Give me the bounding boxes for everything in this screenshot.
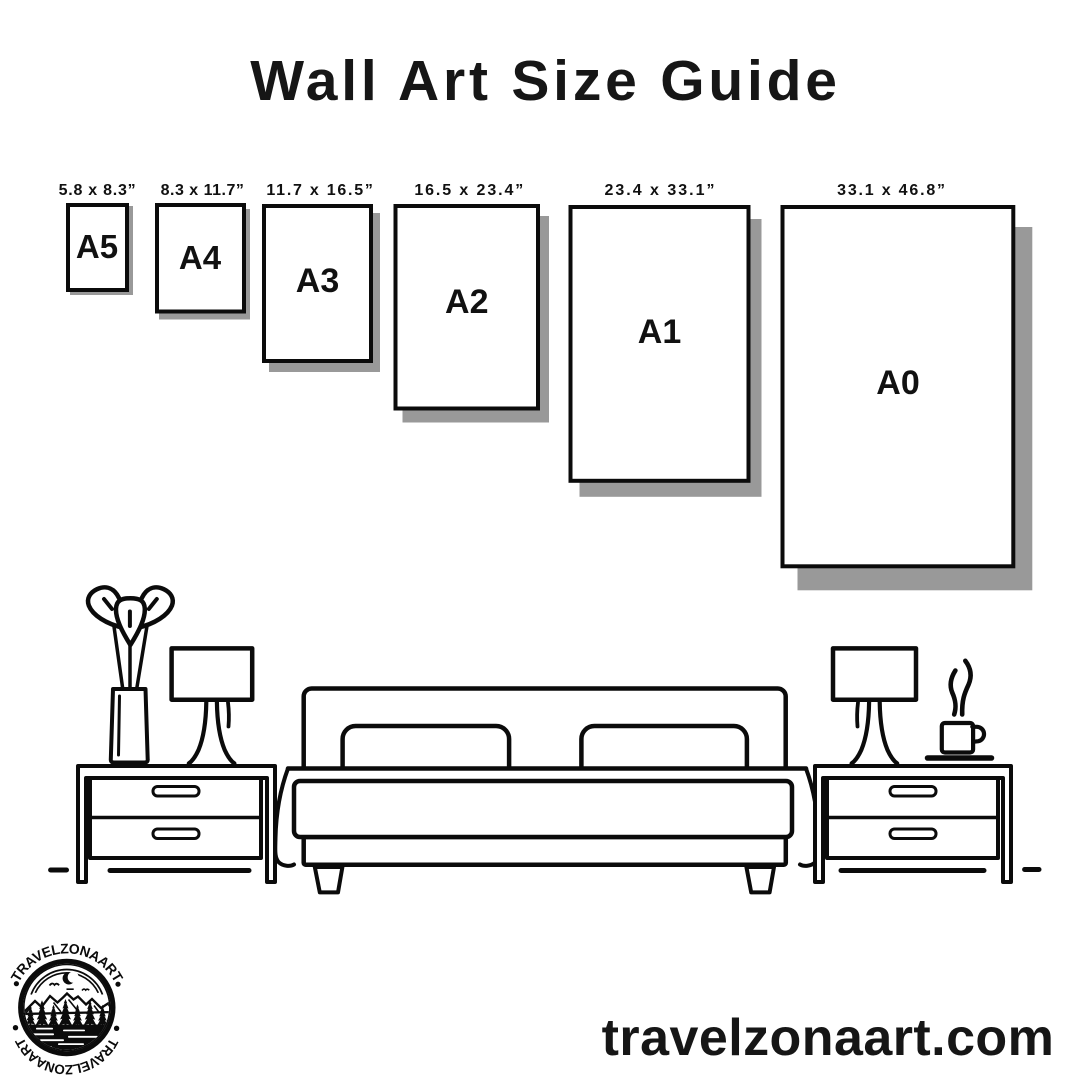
svg-text:33.1 x 46.8”: 33.1 x 46.8” xyxy=(837,182,947,199)
svg-text:A3: A3 xyxy=(296,262,339,300)
svg-text:23.4 x 33.1”: 23.4 x 33.1” xyxy=(604,182,716,199)
svg-text:8.3 x 11.7”: 8.3 x 11.7” xyxy=(161,182,245,199)
svg-text:Wall Art Size Guide: Wall Art Size Guide xyxy=(250,49,841,113)
svg-text:A5: A5 xyxy=(76,228,118,265)
svg-text:A2: A2 xyxy=(445,283,488,321)
svg-text:travelzonaart.com: travelzonaart.com xyxy=(602,1009,1055,1067)
svg-text:16.5 x 23.4”: 16.5 x 23.4” xyxy=(414,182,525,199)
svg-text:11.7 x 16.5”: 11.7 x 16.5” xyxy=(266,182,374,199)
svg-text:A1: A1 xyxy=(638,313,681,351)
svg-text:A4: A4 xyxy=(179,239,222,276)
svg-text:A0: A0 xyxy=(876,364,919,402)
svg-text:5.8 x 8.3”: 5.8 x 8.3” xyxy=(59,182,137,199)
